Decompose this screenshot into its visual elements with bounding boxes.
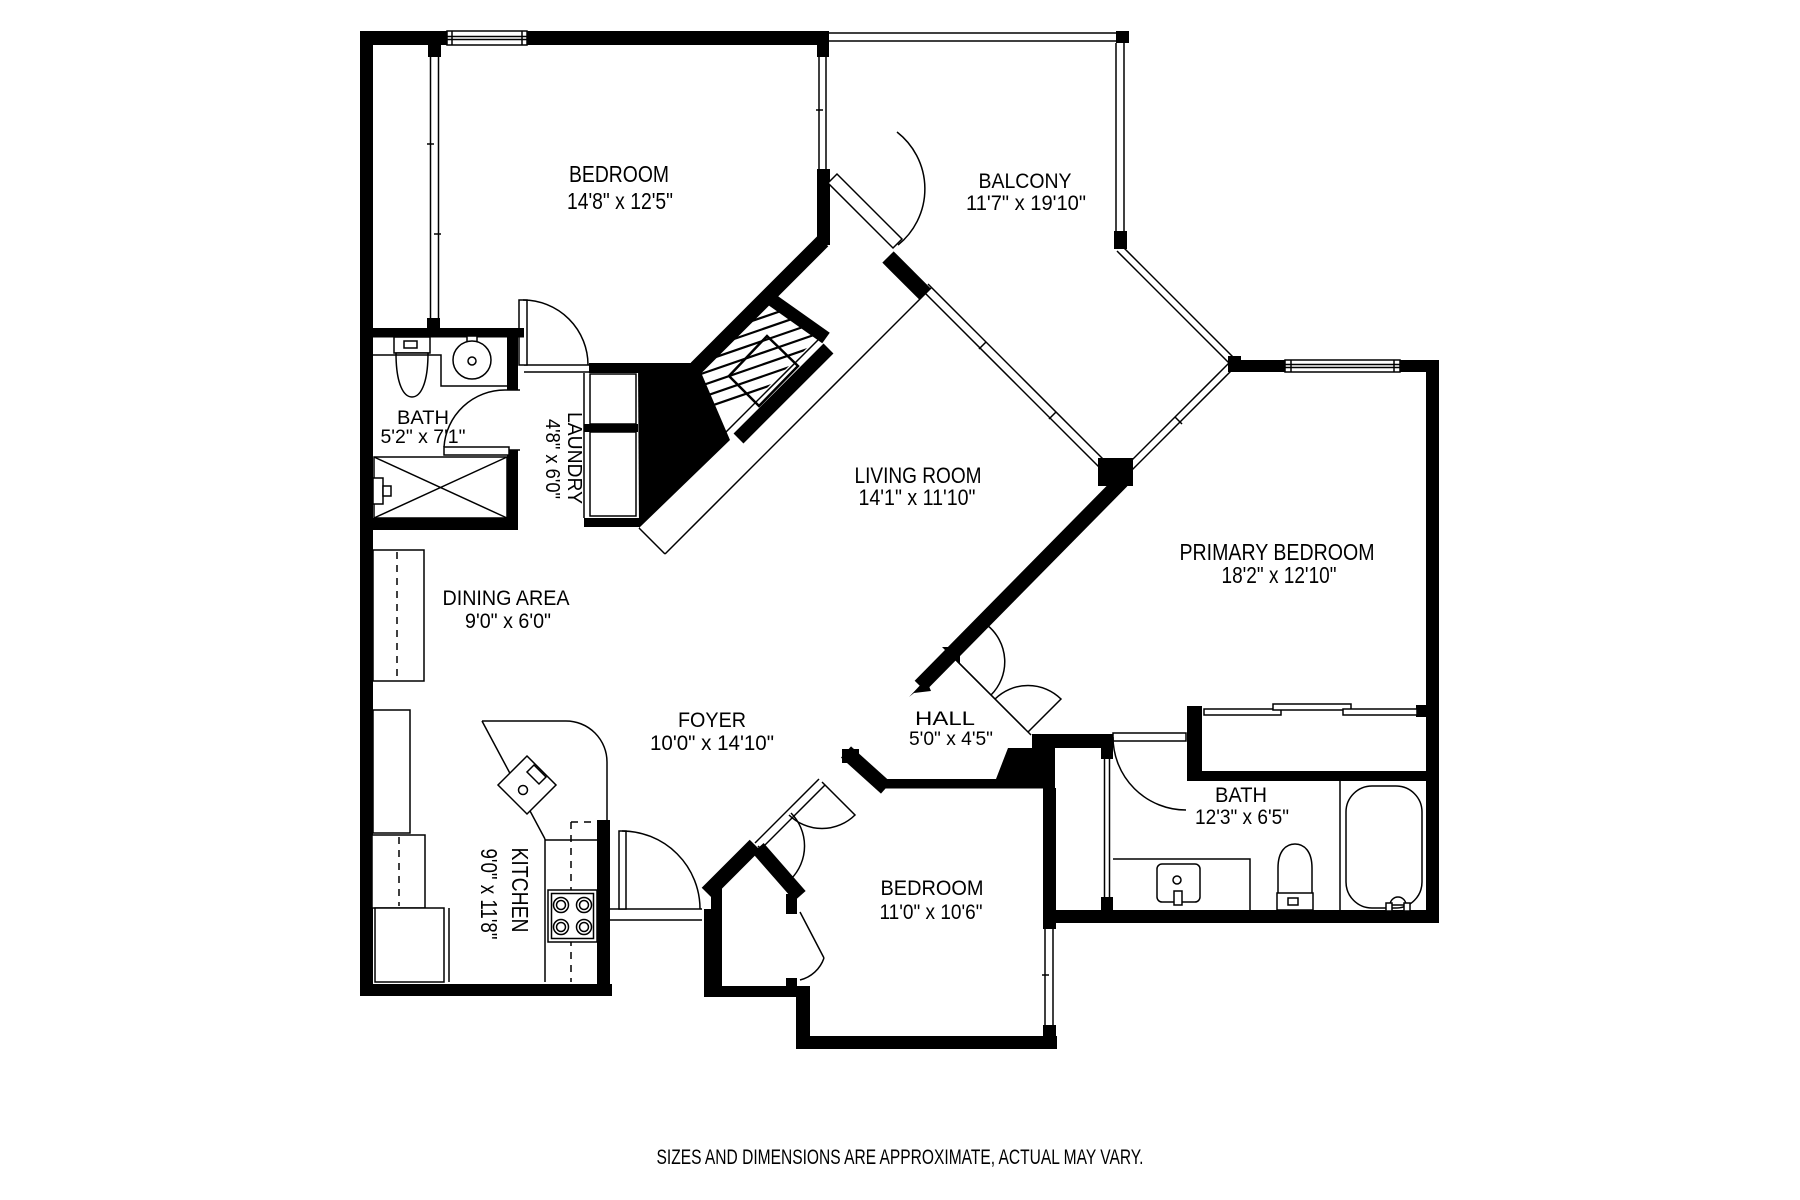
svg-text:BEDROOM: BEDROOM [881,877,984,900]
svg-text:11'0" x 10'6": 11'0" x 10'6" [880,901,983,924]
svg-text:9'0" x 11'8": 9'0" x 11'8" [476,849,502,940]
svg-text:9'0" x 6'0": 9'0" x 6'0" [465,609,551,633]
svg-text:11'7" x 19'10": 11'7" x 19'10" [966,191,1086,215]
svg-text:14'1" x 11'10": 14'1" x 11'10" [859,485,976,510]
svg-text:5'0" x 4'5": 5'0" x 4'5" [909,728,993,750]
svg-text:18'2" x 12'10": 18'2" x 12'10" [1222,562,1337,588]
svg-text:14'8" x 12'5": 14'8" x 12'5" [567,188,673,214]
svg-text:12'3" x 6'5": 12'3" x 6'5" [1195,806,1289,829]
svg-text:5'2" x 7'1": 5'2" x 7'1" [381,426,466,448]
svg-text:DINING AREA: DINING AREA [443,586,571,610]
svg-text:10'0" x 14'10": 10'0" x 14'10" [650,731,774,755]
svg-text:FOYER: FOYER [678,708,746,732]
svg-text:4'8" x 6'0": 4'8" x 6'0" [541,419,563,499]
svg-text:LAUNDRY: LAUNDRY [563,412,585,504]
svg-text:BEDROOM: BEDROOM [569,161,669,187]
svg-text:HALL: HALL [915,708,975,730]
svg-text:BALCONY: BALCONY [979,169,1072,193]
svg-text:SIZES AND DIMENSIONS ARE APPRO: SIZES AND DIMENSIONS ARE APPROXIMATE, AC… [657,1146,1144,1169]
svg-text:KITCHEN: KITCHEN [507,848,533,933]
svg-text:BATH: BATH [1215,784,1267,807]
